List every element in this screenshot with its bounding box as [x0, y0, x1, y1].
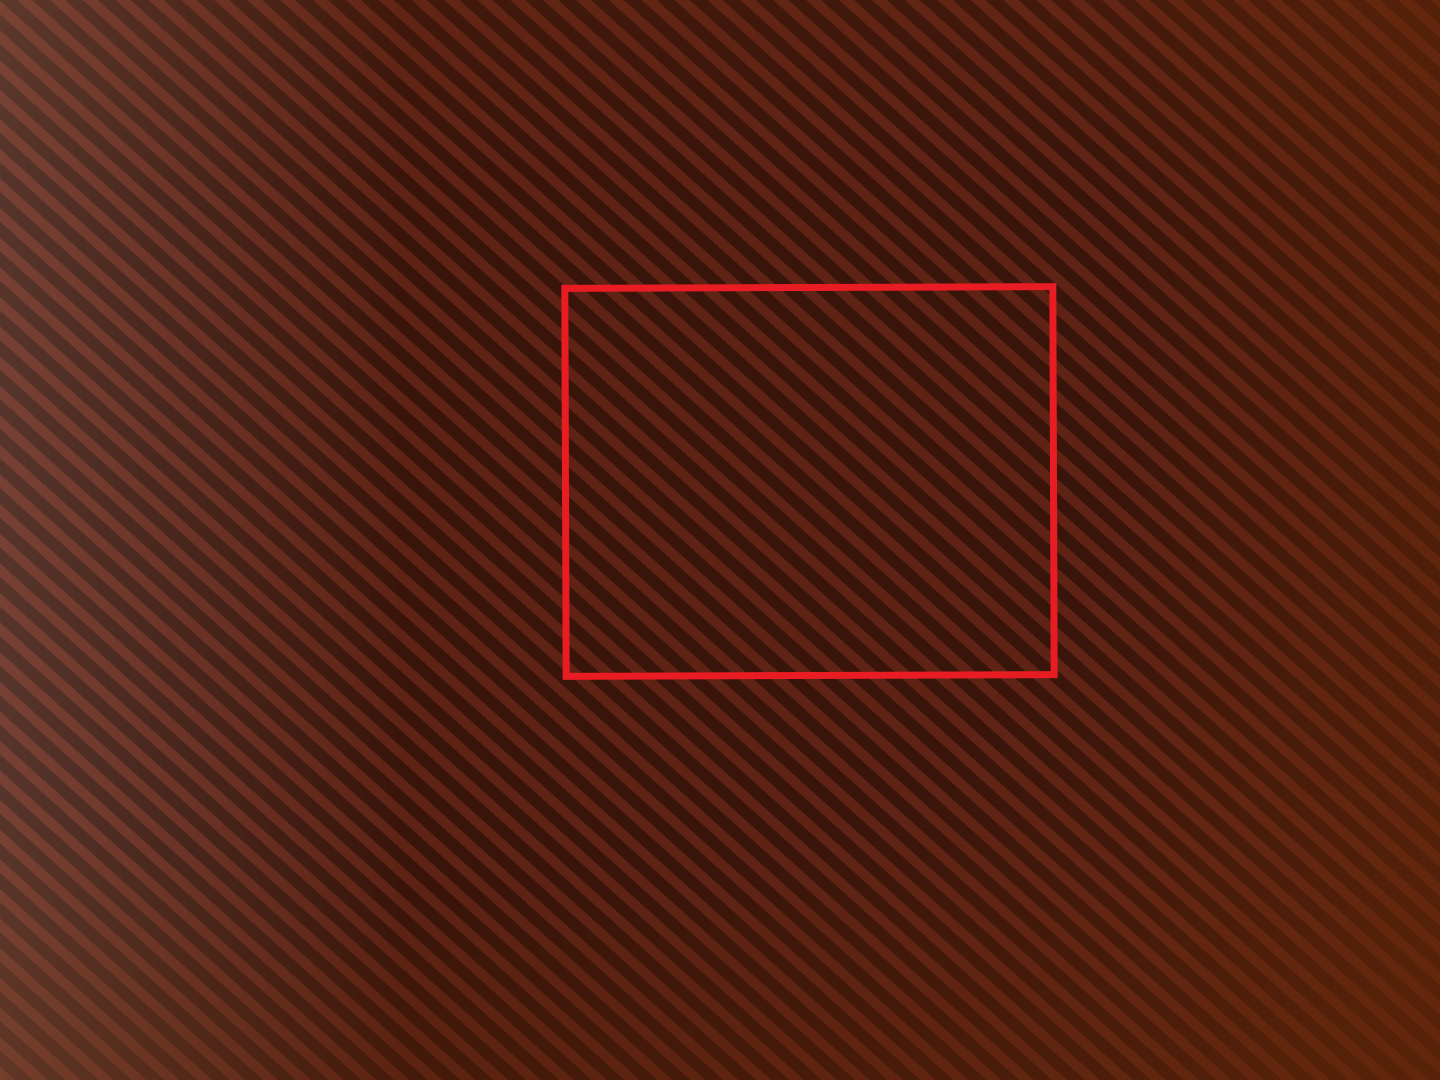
- margin-note: Д: [1387, 4, 1405, 24]
- margin-note: Помещ. 1 помещ. — 264,4 м: [1348, 702, 1371, 899]
- margin-note: 2319: [1343, 414, 1360, 446]
- margin-note: [90, 600, 121, 950]
- margin-note: 10 - лестн. - 18,3 м²: [1239, 66, 1272, 270]
- margin-note: ст. Мещ. — 164,8: [1364, 133, 1387, 268]
- margin-note: Башкирской: [308, 129, 336, 255]
- margin-note: —сутр.— 182,4: [1329, 132, 1351, 248]
- margin-note: Уфимской: [188, 59, 209, 130]
- photo-of-floorplan: 1018,36,252,98117,16,1812,82,95218,226,2…: [0, 0, 1440, 1080]
- margin-note: Уфимское: [528, 114, 576, 239]
- margin-note: шоссе 13 А: [579, 103, 637, 241]
- margin-note: 6 - туалет - 10,7 м²: [1175, 45, 1208, 248]
- margin-note: 2-й эт.: [80, 977, 103, 1024]
- margin-note: ОАО „УНЖ“: [467, 98, 520, 261]
- margin-note: 282,4 м² вместе с лестницей.: [65, 138, 116, 481]
- margin-note: 566,3 × 350 = 66 025: [1357, 488, 1419, 642]
- margin-note: МНГК.: [372, 179, 412, 280]
- margin-note: 2-й этаж: [67, 665, 105, 755]
- margin-note: Нежилое: [154, 49, 173, 116]
- margin-note: Пол S - 188,3: [1292, 133, 1325, 287]
- margin-note: 9 - коридор - 41,0 м²: [1207, 60, 1240, 264]
- margin-note: 1521: [1334, 453, 1350, 482]
- margin-note: 566,3: [1355, 459, 1381, 504]
- highlight-rectangle: [561, 283, 1057, 680]
